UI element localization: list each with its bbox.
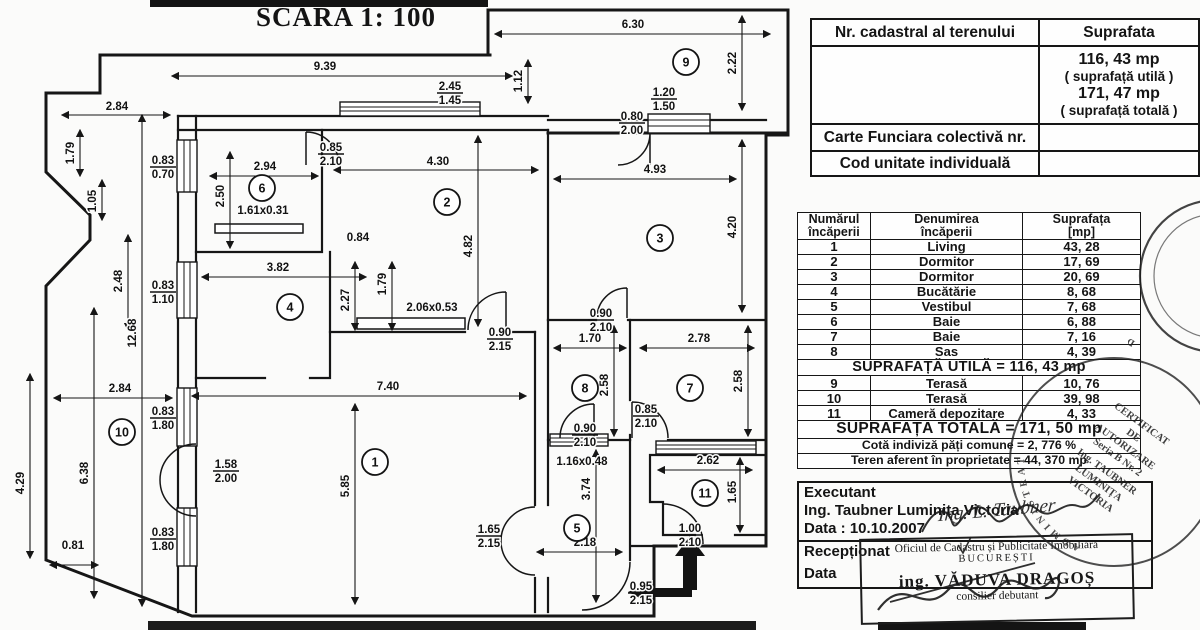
signatures-overlay xyxy=(0,0,1200,630)
vaduva-signature-scribble xyxy=(878,578,1059,610)
signature-stroke xyxy=(890,563,1035,602)
checkmark-scribble xyxy=(958,537,971,553)
taubner-signature-scribble xyxy=(922,494,1100,532)
cadastral-document-page: SCARA 1: 100 xyxy=(0,0,1200,630)
